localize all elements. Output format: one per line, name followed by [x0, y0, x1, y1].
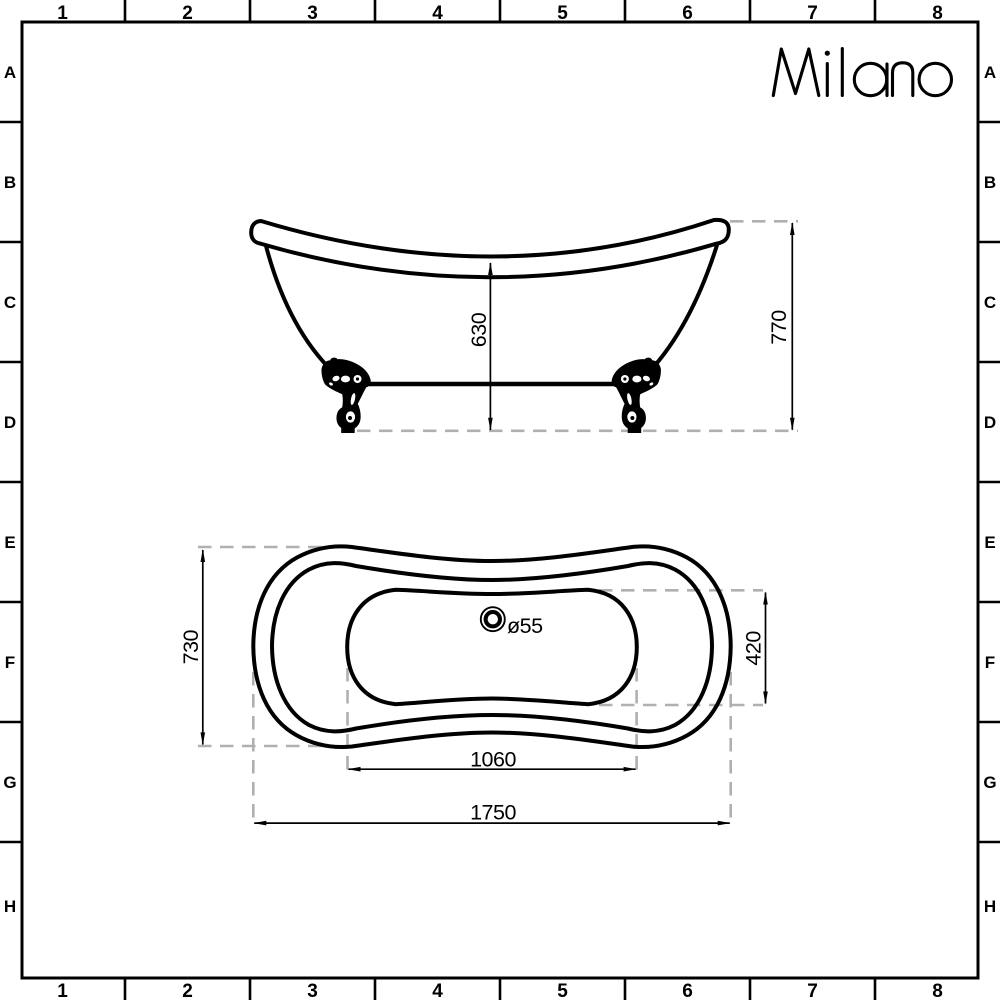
svg-text:2: 2 [182, 981, 193, 1000]
svg-text:770: 770 [767, 310, 791, 345]
svg-text:1: 1 [57, 981, 68, 1000]
svg-text:D: D [984, 413, 996, 432]
svg-text:5: 5 [557, 3, 568, 24]
svg-text:A: A [984, 63, 996, 82]
svg-text:1750: 1750 [470, 801, 516, 825]
svg-text:D: D [4, 413, 16, 432]
svg-text:420: 420 [742, 631, 766, 666]
svg-text:E: E [984, 533, 995, 552]
svg-text:A: A [4, 63, 16, 82]
svg-text:7: 7 [807, 981, 818, 1000]
svg-text:8: 8 [932, 981, 943, 1000]
svg-text:4: 4 [432, 981, 443, 1000]
svg-text:1060: 1060 [470, 747, 516, 771]
svg-text:4: 4 [432, 3, 443, 24]
svg-text:1: 1 [57, 3, 68, 24]
svg-text:730: 730 [179, 629, 203, 664]
svg-text:3: 3 [307, 981, 318, 1000]
svg-text:5: 5 [557, 981, 568, 1000]
svg-text:H: H [4, 897, 16, 916]
svg-text:B: B [4, 173, 16, 192]
svg-text:6: 6 [682, 981, 693, 1000]
svg-text:2: 2 [182, 3, 193, 24]
svg-text:G: G [3, 773, 16, 792]
svg-text:F: F [985, 653, 995, 672]
svg-text:E: E [4, 533, 15, 552]
svg-text:C: C [4, 293, 16, 312]
svg-text:B: B [984, 173, 996, 192]
svg-text:8: 8 [932, 3, 943, 24]
svg-text:7: 7 [807, 3, 818, 24]
svg-text:C: C [984, 293, 996, 312]
svg-text:3: 3 [307, 3, 318, 24]
svg-text:ø55: ø55 [507, 614, 543, 638]
svg-text:6: 6 [682, 3, 693, 24]
svg-text:F: F [5, 653, 15, 672]
svg-text:H: H [984, 897, 996, 916]
svg-text:630: 630 [467, 312, 491, 347]
svg-text:G: G [983, 773, 996, 792]
